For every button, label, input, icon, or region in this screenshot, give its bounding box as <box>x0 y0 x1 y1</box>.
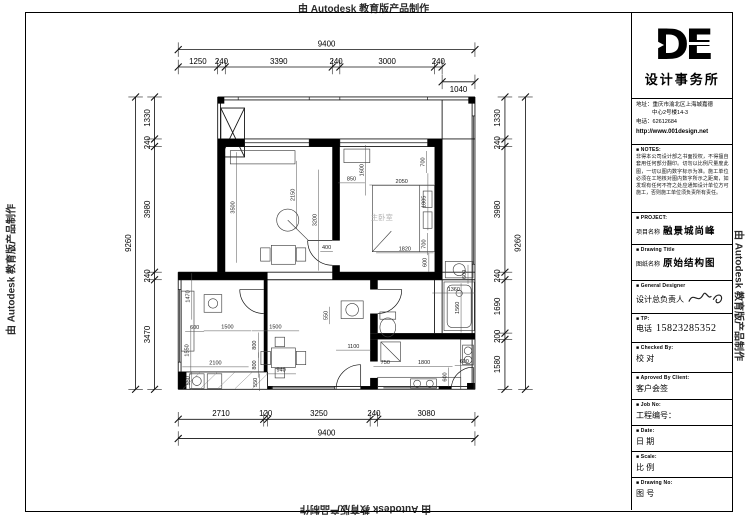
notes-label: ■ NOTES: <box>636 147 729 153</box>
svg-text:550: 550 <box>324 311 330 320</box>
svg-text:200: 200 <box>493 329 502 343</box>
svg-text:1470: 1470 <box>186 290 192 302</box>
svg-text:1500: 1500 <box>269 325 281 331</box>
drawing-title-label: ■ Drawing Title <box>636 247 729 253</box>
svg-text:850: 850 <box>347 177 356 183</box>
drawing-no-value: 图 号 <box>636 488 729 499</box>
svg-text:2150: 2150 <box>290 189 296 201</box>
tp-section: ■ TP: 电话 15823285352 <box>632 314 733 343</box>
notes-text: 非得本公司设计部之书面授权，不得擅自套用任何部分翻印。切勿以比例尺量度此图，一切… <box>636 154 729 198</box>
project-row: 项目名称 融景城尚峰 <box>636 223 729 237</box>
svg-text:3000: 3000 <box>378 57 396 66</box>
svg-text:3200: 3200 <box>312 214 318 226</box>
svg-text:9400: 9400 <box>318 428 336 437</box>
scale-label: ■ Scale: <box>636 454 729 460</box>
pillow <box>423 212 432 228</box>
svg-text:2710: 2710 <box>212 409 230 418</box>
svg-text:240: 240 <box>329 57 343 66</box>
svg-text:1330: 1330 <box>143 109 152 127</box>
notes-section: ■ NOTES: 非得本公司设计部之书面授权，不得擅自套用任何部分翻印。切勿以比… <box>632 145 733 213</box>
svg-text:3080: 3080 <box>418 409 436 418</box>
svg-text:1330: 1330 <box>493 109 502 127</box>
svg-text:600: 600 <box>443 372 449 381</box>
drawing-sheet: 由 Autodesk 教育版产品制作 由 Autodesk 教育版产品制作 由 … <box>0 0 750 524</box>
logo-slit <box>687 42 711 45</box>
svg-text:550: 550 <box>253 378 259 387</box>
job-label: ■ Job No: <box>636 402 729 408</box>
address-line1: 地址：重庆市渝北区上海城嘉德 <box>636 101 729 109</box>
svg-text:240: 240 <box>367 409 381 418</box>
website: http://www.001design.net <box>636 128 729 137</box>
company-name: 设计事务所 <box>645 69 720 88</box>
autodesk-watermark-right: 由 Autodesk 教育版产品制作 <box>733 216 748 376</box>
svg-text:240: 240 <box>143 136 152 150</box>
phone-number: 62612684 <box>653 119 677 125</box>
tp-row: 电话 15823285352 <box>636 323 729 334</box>
scale-value: 比 例 <box>636 462 729 473</box>
logo-section: DE 设计事务所 <box>632 13 733 99</box>
svg-text:600: 600 <box>462 270 468 279</box>
tp-label: ■ TP: <box>636 316 729 322</box>
svg-text:750: 750 <box>381 360 390 366</box>
svg-text:700: 700 <box>421 239 427 248</box>
walls-black <box>178 97 475 389</box>
drawing-name: 原始结构图 <box>663 255 716 269</box>
address-section: 地址：重庆市渝北区上海城嘉德 中心2号楼14-3 电话：62612684 htt… <box>632 99 733 145</box>
stove <box>411 379 437 388</box>
approved-value: 客户会签 <box>636 383 729 394</box>
svg-text:240: 240 <box>143 269 152 283</box>
autodesk-watermark-left: 由 Autodesk 教育版产品制作 <box>3 190 18 350</box>
designer-signature <box>686 289 726 307</box>
approved-label: ■ Aproved By Client: <box>636 375 729 381</box>
scale-section: ■ Scale: 比 例 <box>632 452 733 478</box>
svg-text:1690: 1690 <box>493 297 502 315</box>
svg-text:800: 800 <box>252 340 258 349</box>
project-section: ■ PROJECT: 项目名称 融景城尚峰 <box>632 213 733 245</box>
project-name-label: 项目名称 <box>636 227 660 236</box>
phone-label: 电话： <box>636 119 653 125</box>
svg-text:1040: 1040 <box>450 85 468 94</box>
checked-value: 校 对 <box>636 353 729 364</box>
svg-text:240: 240 <box>493 136 502 150</box>
svg-text:600: 600 <box>190 325 199 331</box>
svg-text:1580: 1580 <box>493 355 502 373</box>
date-section: ■ Date: 日 期 <box>632 426 733 452</box>
svg-text:2100: 2100 <box>209 361 221 367</box>
project-label: ■ PROJECT: <box>636 215 729 221</box>
svg-text:1560: 1560 <box>455 302 461 314</box>
drawing-name-label: 图纸名称 <box>636 259 660 268</box>
drawing-no-label: ■ Drawing No: <box>636 480 729 486</box>
drawing-no-section: ■ Drawing No: 图 号 <box>632 478 733 510</box>
checked-label: ■ Checked By: <box>636 345 729 351</box>
designer-name-label: 设计总负责人 <box>636 294 684 305</box>
title-block: DE 设计事务所 地址：重庆市渝北区上海城嘉德 中心2号楼14-3 电话：626… <box>631 13 733 510</box>
svg-text:240: 240 <box>432 57 446 66</box>
svg-text:1250: 1250 <box>189 57 207 66</box>
checked-section: ■ Checked By: 校 对 <box>632 343 733 373</box>
svg-text:240: 240 <box>215 57 229 66</box>
address-line2: 中心2号楼14-3 <box>636 109 729 117</box>
svg-text:1100: 1100 <box>347 344 359 350</box>
study-desk <box>204 295 222 313</box>
svg-text:1550: 1550 <box>185 344 191 356</box>
floor-plan: 9400125024033902403000240104092601330240… <box>96 37 554 460</box>
svg-text:3980: 3980 <box>143 200 152 218</box>
svg-text:600: 600 <box>460 359 469 365</box>
svg-text:主卧室: 主卧室 <box>371 212 393 222</box>
phone-line: 电话：62612684 <box>636 118 729 126</box>
svg-text:2050: 2050 <box>396 179 408 185</box>
svg-text:940: 940 <box>277 368 286 374</box>
svg-text:600: 600 <box>423 258 429 267</box>
date-value: 日 期 <box>636 436 729 447</box>
tel-label: 电话 <box>636 323 652 334</box>
svg-text:9260: 9260 <box>514 234 523 252</box>
svg-text:1600: 1600 <box>360 164 366 176</box>
company-logo-icon: DE <box>651 24 713 66</box>
svg-text:800: 800 <box>252 360 258 369</box>
svg-text:1805: 1805 <box>422 196 428 208</box>
drawing-title-section: ■ Drawing Title 图纸名称 原始结构图 <box>632 245 733 281</box>
date-label: ■ Date: <box>636 428 729 434</box>
svg-text:3390: 3390 <box>270 57 288 66</box>
svg-text:3500: 3500 <box>230 201 236 213</box>
svg-text:1360: 1360 <box>448 287 460 293</box>
job-section: ■ Job No: 工程编号： <box>632 400 733 426</box>
svg-text:120: 120 <box>259 409 273 418</box>
svg-text:700: 700 <box>420 157 426 166</box>
approved-section: ■ Aproved By Client: 客户会签 <box>632 373 733 400</box>
drawing-title-row: 图纸名称 原始结构图 <box>636 255 729 269</box>
designer-row: 设计总负责人 <box>636 289 729 307</box>
living-table <box>271 245 295 264</box>
svg-text:240: 240 <box>493 269 502 283</box>
svg-text:1800: 1800 <box>418 360 430 366</box>
svg-text:9400: 9400 <box>318 39 336 48</box>
designer-section: ■ General Designer 设计总负责人 <box>632 281 733 314</box>
address-label: 地址： <box>636 102 653 108</box>
svg-text:3470: 3470 <box>143 325 152 343</box>
job-value: 工程编号： <box>636 410 729 421</box>
dining-table <box>271 348 295 368</box>
svg-text:400: 400 <box>322 245 331 251</box>
interior-dimension-labels: 3500215032004008501600205070018051820700… <box>182 145 475 391</box>
svg-text:1500: 1500 <box>221 325 233 331</box>
svg-text:550: 550 <box>186 376 192 385</box>
svg-text:3980: 3980 <box>493 200 502 218</box>
svg-text:1820: 1820 <box>399 247 411 253</box>
tel-number: 15823285352 <box>656 323 717 334</box>
project-name: 融景城尚峰 <box>663 223 716 237</box>
svg-text:3250: 3250 <box>310 409 328 418</box>
svg-text:9260: 9260 <box>124 234 133 252</box>
washer <box>207 374 222 389</box>
address-value1: 重庆市渝北区上海城嘉德 <box>653 102 714 108</box>
